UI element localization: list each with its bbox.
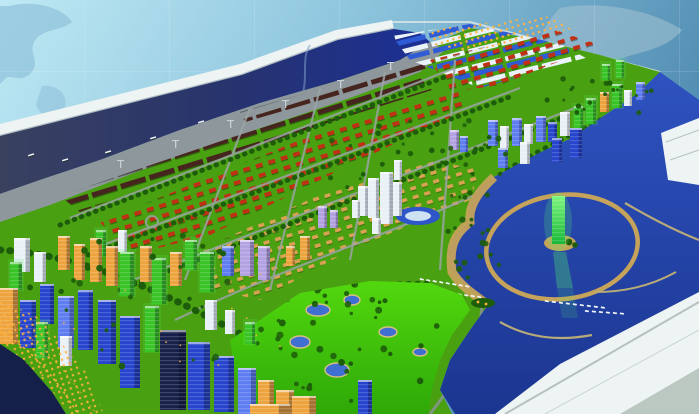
tree [279, 346, 283, 350]
crane-arm [387, 62, 394, 63]
tree [418, 343, 423, 348]
tree [645, 90, 649, 94]
tree [590, 79, 595, 84]
street-light [217, 364, 219, 366]
tree [382, 298, 387, 303]
tree [495, 136, 501, 142]
tower-roof [450, 130, 459, 132]
tower-roof [318, 206, 327, 208]
tower-roof [292, 396, 316, 398]
tree [620, 85, 623, 88]
tower-roof [498, 148, 508, 150]
tree [212, 354, 219, 361]
tree [104, 328, 108, 332]
golf-pond [306, 304, 330, 316]
tree [275, 336, 280, 341]
tower-roof [120, 252, 134, 254]
tower-windows [488, 120, 498, 146]
lit-pier-island [471, 298, 495, 308]
tree [498, 172, 502, 176]
tree [402, 142, 405, 145]
tree [338, 359, 345, 366]
tower-roof [536, 116, 546, 118]
stadium [396, 207, 440, 225]
tower-windows [602, 64, 610, 80]
tower-windows [152, 258, 166, 304]
tree [291, 352, 298, 359]
tree [649, 88, 654, 93]
tree [446, 229, 451, 234]
tower-windows [106, 246, 118, 286]
tower-windows [560, 112, 570, 136]
crane-arm [172, 140, 179, 141]
tower-roof [358, 380, 372, 382]
tower-windows [460, 136, 468, 152]
tree [294, 381, 299, 386]
tower-roof [240, 240, 254, 242]
tower-windows [120, 252, 134, 296]
golf-pond [290, 336, 310, 348]
tower-roof [616, 60, 624, 62]
tree [459, 217, 465, 223]
crane-arm [227, 120, 234, 121]
street-light [179, 361, 181, 363]
tree [345, 301, 352, 308]
tower-roof [602, 64, 610, 66]
tower-roof [245, 322, 255, 324]
tree [277, 319, 281, 323]
tower-roof [200, 252, 214, 254]
tree [576, 103, 581, 108]
street-light [259, 273, 261, 275]
tree [317, 346, 324, 353]
tree [450, 194, 453, 197]
tower-roof [372, 218, 381, 220]
tower-windows [624, 90, 632, 106]
crane-mast [175, 140, 176, 148]
tower-roof [624, 90, 632, 92]
tree [440, 161, 444, 165]
tree [85, 266, 90, 271]
tree [483, 143, 486, 146]
tower-windows [636, 82, 645, 100]
tower-roof [552, 138, 562, 140]
tower-roof [500, 126, 509, 128]
tree [258, 327, 264, 333]
tree [440, 148, 445, 153]
tower-roof [524, 124, 533, 126]
tower-windows [318, 206, 327, 228]
tower-roof [368, 178, 379, 180]
tree [469, 224, 472, 227]
tower-roof [160, 330, 186, 332]
tree [380, 162, 385, 167]
golf-pond [379, 327, 397, 337]
tree [417, 378, 424, 385]
tower-roof [106, 246, 118, 248]
tower-windows [372, 218, 381, 234]
tree [607, 80, 613, 86]
tower-roof [586, 98, 596, 100]
tree [27, 284, 33, 290]
tree [503, 151, 508, 156]
tree [635, 94, 638, 97]
tree [349, 399, 353, 403]
pier-light [477, 301, 480, 304]
tree [434, 323, 440, 329]
tower-windows [145, 306, 159, 352]
tree [473, 147, 478, 152]
tree [483, 241, 488, 246]
tower-windows [380, 172, 393, 224]
tree [560, 76, 566, 82]
tree [359, 177, 362, 180]
tree [325, 301, 328, 304]
tower-roof [60, 336, 72, 338]
tree [401, 176, 404, 179]
tree [328, 175, 333, 180]
tower-windows [498, 148, 508, 168]
street-light [165, 341, 167, 343]
tree [312, 301, 318, 307]
tower-windows [118, 230, 127, 252]
tree [128, 295, 133, 300]
tree [588, 100, 592, 104]
tree [200, 244, 205, 249]
tree [71, 278, 76, 283]
tower-windows [524, 124, 533, 144]
tower-roof [20, 300, 36, 302]
tower-windows [185, 240, 197, 270]
tower-roof [185, 240, 197, 242]
tower-windows [300, 236, 310, 260]
tree [467, 190, 473, 196]
lighthouse-windows [552, 196, 565, 244]
tower-windows [58, 236, 70, 270]
tree [461, 260, 467, 266]
tree [380, 345, 387, 352]
island-tree [572, 242, 578, 248]
tower-roof [78, 290, 93, 292]
tree [408, 119, 412, 123]
tower-windows [205, 300, 217, 330]
tower-roof [512, 118, 522, 120]
tower-windows [34, 252, 46, 282]
tower-windows [90, 238, 102, 282]
tree [458, 196, 461, 199]
tower-windows [358, 380, 372, 414]
tree [429, 148, 435, 154]
crane-arm [282, 100, 289, 101]
tower-roof [258, 246, 270, 248]
tower-roof [548, 122, 557, 124]
tree [562, 99, 565, 102]
tree [463, 195, 468, 200]
scene-svg [0, 0, 699, 414]
tower-windows [552, 138, 562, 162]
street-light [279, 345, 281, 347]
pier-light [485, 303, 488, 306]
tree [200, 305, 203, 308]
street-light [231, 308, 233, 310]
tree [487, 135, 492, 140]
tower-roof [34, 252, 46, 254]
tower-roof [352, 200, 360, 202]
tower-windows [570, 128, 582, 158]
tree [454, 260, 459, 265]
tree [471, 172, 475, 176]
stadium-field [405, 211, 431, 221]
tree [463, 162, 468, 167]
tower-windows [40, 284, 54, 324]
tree [369, 297, 375, 303]
tower-windows [78, 290, 93, 350]
street-light [255, 334, 257, 336]
tower-roof [140, 246, 152, 248]
tree [149, 253, 156, 260]
tower-roof [0, 288, 18, 290]
street-light [124, 289, 126, 291]
tree [485, 192, 490, 197]
tree [361, 172, 366, 177]
tree [349, 361, 354, 366]
crane-mast [390, 62, 391, 70]
tree [481, 231, 485, 235]
tower-roof [40, 284, 54, 286]
tower-roof [120, 316, 140, 318]
tree [636, 110, 641, 115]
crane-mast [120, 160, 121, 168]
tree [477, 253, 483, 259]
tree [187, 297, 191, 301]
tower-windows [245, 322, 255, 344]
street-light [43, 354, 45, 356]
tree [96, 265, 103, 272]
tower-roof [10, 262, 22, 264]
tower-windows [10, 262, 22, 290]
tree [310, 320, 316, 326]
street-light [41, 374, 43, 376]
tower-roof [58, 236, 70, 238]
tree [96, 239, 102, 245]
crane-arm [337, 80, 344, 81]
tower-windows [160, 330, 186, 410]
tree [100, 348, 103, 351]
pier-island-green [471, 298, 495, 308]
tree [408, 151, 413, 156]
tower-windows [330, 210, 338, 228]
tower-windows [512, 118, 522, 146]
street-light [179, 345, 181, 347]
tower-roof [300, 236, 310, 238]
tree [545, 97, 550, 102]
tree [603, 92, 607, 96]
tower-roof [96, 230, 106, 232]
tree [76, 280, 82, 286]
tree [583, 108, 586, 111]
tree [329, 138, 335, 144]
tree [388, 352, 392, 356]
tower-roof [460, 136, 468, 138]
tower-windows [368, 178, 379, 218]
tower-roof [330, 210, 338, 212]
crane-arm [117, 160, 124, 161]
tower-roof [222, 246, 234, 248]
tree [378, 300, 382, 304]
tree [396, 150, 401, 155]
tower-windows [200, 252, 214, 292]
tree [497, 263, 501, 267]
street-light [63, 322, 65, 324]
tower-roof [258, 380, 274, 382]
tree [569, 88, 572, 91]
tree [456, 266, 462, 272]
tree [344, 369, 349, 374]
photo-of-city-planning-model [0, 0, 699, 414]
tower-roof [145, 306, 159, 308]
tree [448, 146, 453, 151]
tree [350, 312, 353, 315]
tower-roof [205, 300, 217, 302]
tower-roof [394, 160, 402, 162]
tower-windows [292, 396, 316, 414]
crane-mast [230, 120, 231, 128]
tower-windows [352, 200, 360, 218]
tower-roof [570, 128, 582, 130]
tree [224, 279, 230, 285]
tower-roof [170, 252, 182, 254]
tree [470, 218, 474, 222]
tree [301, 386, 304, 389]
tree [358, 347, 362, 351]
tower-roof [560, 112, 570, 114]
tower-roof [612, 84, 622, 86]
tower-roof [380, 172, 393, 174]
tower-windows [240, 240, 254, 276]
tower-windows [536, 116, 546, 142]
tree [59, 289, 64, 294]
tree [375, 307, 382, 314]
tree [466, 275, 470, 279]
street-light [246, 317, 248, 319]
tree [462, 123, 466, 127]
tower-roof [98, 300, 116, 302]
tower-windows [214, 356, 234, 412]
crane-mast [340, 80, 341, 88]
tower-roof [74, 244, 85, 246]
tree [611, 88, 615, 92]
tower-roof [225, 310, 235, 312]
tower-roof [392, 182, 402, 184]
tower-roof [14, 238, 30, 240]
tower-roof [238, 368, 256, 370]
tower-roof [250, 404, 290, 406]
tree [65, 308, 69, 312]
tree [178, 265, 182, 269]
tower-windows [188, 342, 210, 410]
tree [486, 228, 490, 232]
tower-roof [118, 230, 127, 232]
tower-roof [286, 246, 295, 248]
street-light [160, 330, 162, 332]
tree [466, 118, 472, 124]
tree [349, 144, 353, 148]
tree [616, 88, 619, 91]
tower-roof [276, 390, 294, 392]
tree [374, 316, 377, 319]
tree [119, 363, 126, 370]
tree [376, 123, 381, 128]
tower-roof [520, 142, 530, 144]
tower-roof [488, 120, 498, 122]
tower-windows [394, 160, 402, 180]
tower-roof [358, 186, 368, 188]
tower-windows [520, 142, 530, 164]
tree [489, 253, 493, 257]
tree [330, 353, 336, 359]
tree [322, 293, 327, 298]
tree [192, 358, 195, 361]
tree [345, 185, 349, 189]
tree [220, 251, 226, 257]
tree [150, 237, 154, 241]
tree [180, 233, 186, 239]
tower-roof [636, 82, 645, 84]
crane-mast [285, 100, 286, 108]
tower-roof [58, 296, 74, 298]
tree [453, 226, 457, 230]
tree [81, 247, 88, 254]
tree [430, 131, 434, 135]
tower-roof [188, 342, 210, 344]
tree [375, 130, 381, 136]
tower-windows [612, 84, 622, 108]
street-light [73, 328, 75, 330]
tower-windows [225, 310, 235, 334]
tower-windows [616, 60, 624, 78]
golf-pond [413, 348, 427, 356]
tower-windows [286, 246, 295, 266]
tower-windows [500, 126, 509, 148]
tree [344, 291, 349, 296]
tower-windows [120, 316, 140, 388]
tree [574, 110, 579, 115]
tower-windows [392, 182, 402, 216]
tower-windows [574, 106, 583, 128]
tree [308, 383, 312, 387]
tree [111, 322, 116, 327]
tower-windows [222, 246, 234, 276]
